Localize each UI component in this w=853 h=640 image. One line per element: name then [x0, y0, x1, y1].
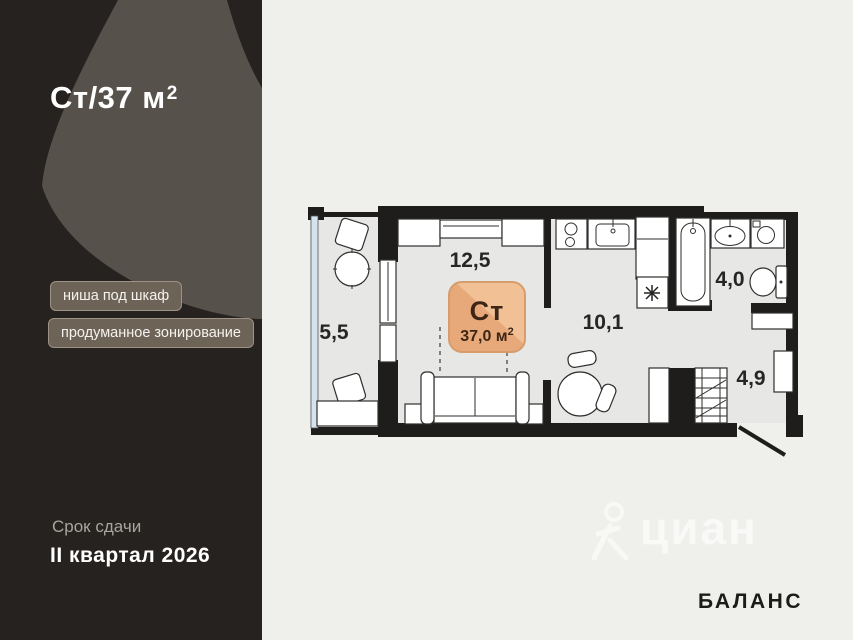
hall-shelf — [752, 313, 793, 329]
balcony-window — [380, 260, 396, 362]
toilet — [750, 266, 787, 298]
kitchen-tall-unit — [636, 217, 669, 279]
feature-tag-zoning: продуманное зонирование — [48, 318, 254, 348]
hall-niche — [774, 351, 793, 392]
developer-logo: БАЛАНС — [698, 590, 803, 614]
bathroom-area-label: 4,0 — [715, 268, 744, 291]
floor-plan: Ст 37,0 м2 — [298, 195, 810, 461]
feature-tag-niche: ниша под шкаф — [50, 281, 182, 311]
brand-panel: Ст/37 м2 ниша под шкаф продуманное зонир… — [0, 0, 262, 640]
deadline-label: Срок сдачи — [52, 517, 141, 537]
badge-unit-type: Ст — [470, 296, 505, 326]
hallway-area-label: 4,9 — [736, 367, 765, 390]
hall-closet — [695, 368, 727, 423]
deadline-value: II квартал 2026 — [50, 544, 210, 568]
balcony-glazing — [311, 216, 318, 428]
badge-unit-area: 37,0 м2 — [460, 326, 514, 345]
badge-area-main: 37,0 м — [460, 328, 507, 345]
watermark-text: циан — [640, 498, 758, 558]
unit-title: Ст/37 м2 — [50, 80, 177, 116]
unit-badge: Ст 37,0 м2 — [449, 282, 525, 352]
living-area-label: 12,5 — [450, 249, 491, 272]
unit-title-text: Ст/37 м — [50, 80, 166, 115]
flat-card: Ст/37 м2 ниша под шкаф продуманное зонир… — [0, 0, 853, 640]
kitchen-area-label: 10,1 — [583, 311, 624, 334]
cian-watermark: циан — [588, 498, 758, 562]
balcony-area-label: 5,5 — [319, 321, 349, 344]
badge-area-sup: 2 — [508, 326, 514, 338]
unit-title-sup: 2 — [167, 83, 178, 104]
cian-pin-icon — [588, 500, 634, 562]
hall-cabinet — [649, 368, 669, 423]
fridge-snowflake-icon — [644, 285, 660, 301]
dining-table — [558, 372, 602, 416]
sofa — [405, 372, 543, 424]
